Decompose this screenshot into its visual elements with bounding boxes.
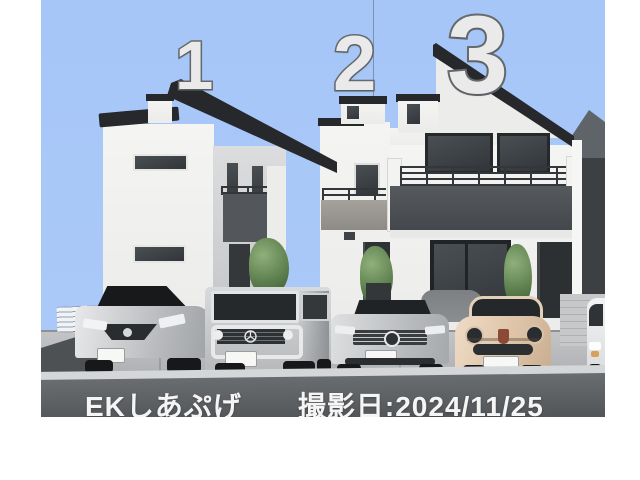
car-silver-hatchback (75, 284, 211, 378)
house-2-clerestory-window (347, 106, 359, 119)
suv-windshield (211, 291, 299, 323)
house-2-balcony-railing (322, 188, 386, 200)
house-3-balcony-band (390, 230, 572, 238)
watermark-prefix: EKしあぷげ (85, 391, 242, 417)
house-2-intercom-panel (344, 232, 355, 240)
unit-number-2: 2 (333, 24, 376, 102)
house-1-balcony-panel (223, 194, 271, 242)
hatchback-badge (123, 328, 132, 337)
house-3-corner-trim (572, 140, 582, 300)
house-2-balcony-fascia (321, 200, 389, 230)
watermark-date: 撮影日:2024/11/25 (298, 391, 544, 417)
house-1-slit-window-lower (133, 245, 186, 263)
watermark-text: EKしあぷげ撮影日:2024/11/25 (85, 393, 544, 417)
white-car-amber-light (591, 351, 599, 357)
white-car-headlight (589, 342, 601, 350)
white-car-window (589, 304, 603, 326)
page: EKしあぷげ撮影日:2024/11/25 1 2 3 (0, 0, 640, 480)
sedan-headlight-left (335, 325, 356, 335)
suv-headlight-left (213, 330, 223, 340)
suv-side-window (301, 293, 329, 321)
compact-headlight-right (525, 325, 544, 344)
house-3-parapet-window (407, 104, 420, 124)
car-gclass-suv (201, 283, 335, 379)
suv-headlight-right (283, 330, 293, 340)
house-3-balcony-railing (400, 166, 566, 186)
listing-photo: EKしあぷげ撮影日:2024/11/25 1 2 3 (41, 0, 605, 417)
compact-badge (498, 329, 509, 344)
unit-number-3: 3 (447, 1, 508, 111)
house-1-slit-window-upper (133, 154, 188, 171)
compact-headlight-left (465, 326, 484, 345)
unit-number-1: 1 (175, 31, 213, 100)
house-3-balcony-fascia (390, 186, 572, 230)
house-1-parapet-cap (146, 94, 174, 101)
vw-badge-icon (384, 331, 400, 347)
compact-grille (473, 344, 533, 355)
